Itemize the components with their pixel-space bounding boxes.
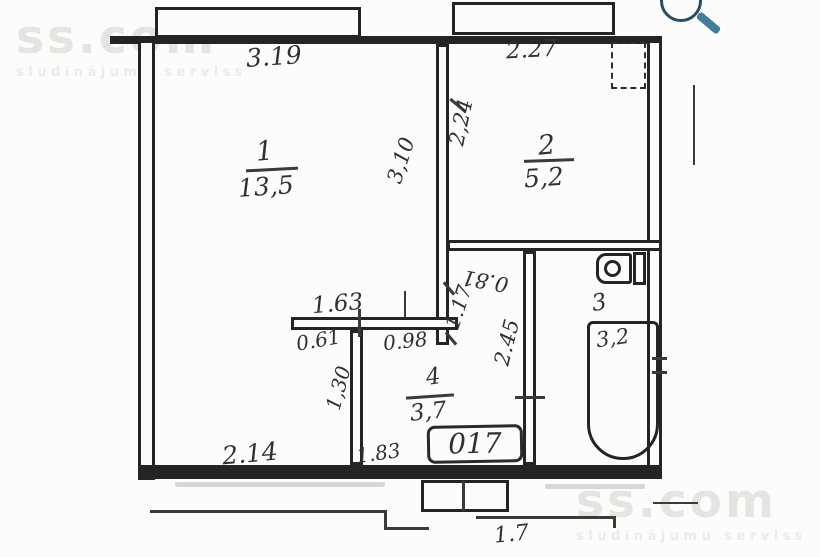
room4-number: 4: [424, 365, 442, 390]
entry-step: [421, 480, 509, 512]
apartment-number-box: 017: [427, 424, 524, 464]
dimension-entry-step: 1.7: [493, 522, 530, 548]
balcony-right: [452, 2, 615, 35]
dimension-line-entry: [476, 516, 616, 519]
wall-bottom: [138, 465, 662, 479]
wall-top: [110, 36, 662, 44]
bathtub-tap-bottom: [652, 371, 667, 374]
extension-line-closet: [404, 291, 406, 318]
dimension-room1-depth: 3,10: [384, 135, 418, 186]
dimension-closet-wall: 1.63: [311, 291, 364, 318]
dimension-closet-left: 0.61: [295, 326, 342, 353]
watermark-tagline: sludinājumu serviss: [576, 529, 807, 544]
dimension-hall-bottom: 1.83: [355, 440, 402, 466]
room3-number: 3: [590, 291, 608, 316]
room2-area: 5,2: [523, 164, 564, 192]
dimension-balcony-right: 2.27: [505, 38, 557, 64]
door-sill-bathroom: [515, 396, 545, 399]
room3-area: 3,2: [595, 326, 631, 351]
dimension-balcony-left: 3.19: [245, 42, 302, 71]
room4-area: 3,7: [409, 399, 448, 426]
toilet-bowl-circle: [604, 260, 621, 277]
entry-step-divider: [462, 481, 465, 511]
room1-area: 13,5: [237, 172, 294, 201]
scan-smudge: [175, 482, 385, 487]
wall-hall-top: [447, 240, 662, 251]
scan-smudge: [545, 484, 645, 489]
wall-hall-bathroom: [523, 251, 536, 465]
balcony-left: [155, 7, 361, 38]
porch-edge-step: [384, 527, 429, 530]
dimension-line-right: [653, 502, 698, 504]
bathtub-tap-top: [652, 357, 667, 360]
magnifier-glass: [660, 0, 702, 22]
wall-left: [138, 40, 155, 480]
extension-line-right: [693, 85, 695, 165]
dimension-room1-bottom: 2.14: [221, 439, 279, 469]
room1-number: 1: [255, 137, 274, 165]
apartment-number: 017: [448, 430, 502, 459]
room2-number: 2: [537, 131, 556, 159]
vent-shaft: [611, 42, 646, 89]
magnifier-handle: [696, 11, 722, 34]
dimension-room2-left-wall: 2,24: [446, 97, 476, 147]
porch-edge-left: [150, 510, 386, 513]
watermark-tagline: sludinājumu serviss: [16, 65, 247, 80]
floor-plan-scan: ss.com sludinājumu serviss ss.com sludin…: [0, 0, 820, 557]
dimension-hall-depth: 2.45: [492, 317, 524, 367]
toilet-tank: [633, 252, 646, 285]
dimension-closet-right: 0.98: [382, 329, 428, 354]
dimension-line-entry-tick: [613, 516, 616, 528]
